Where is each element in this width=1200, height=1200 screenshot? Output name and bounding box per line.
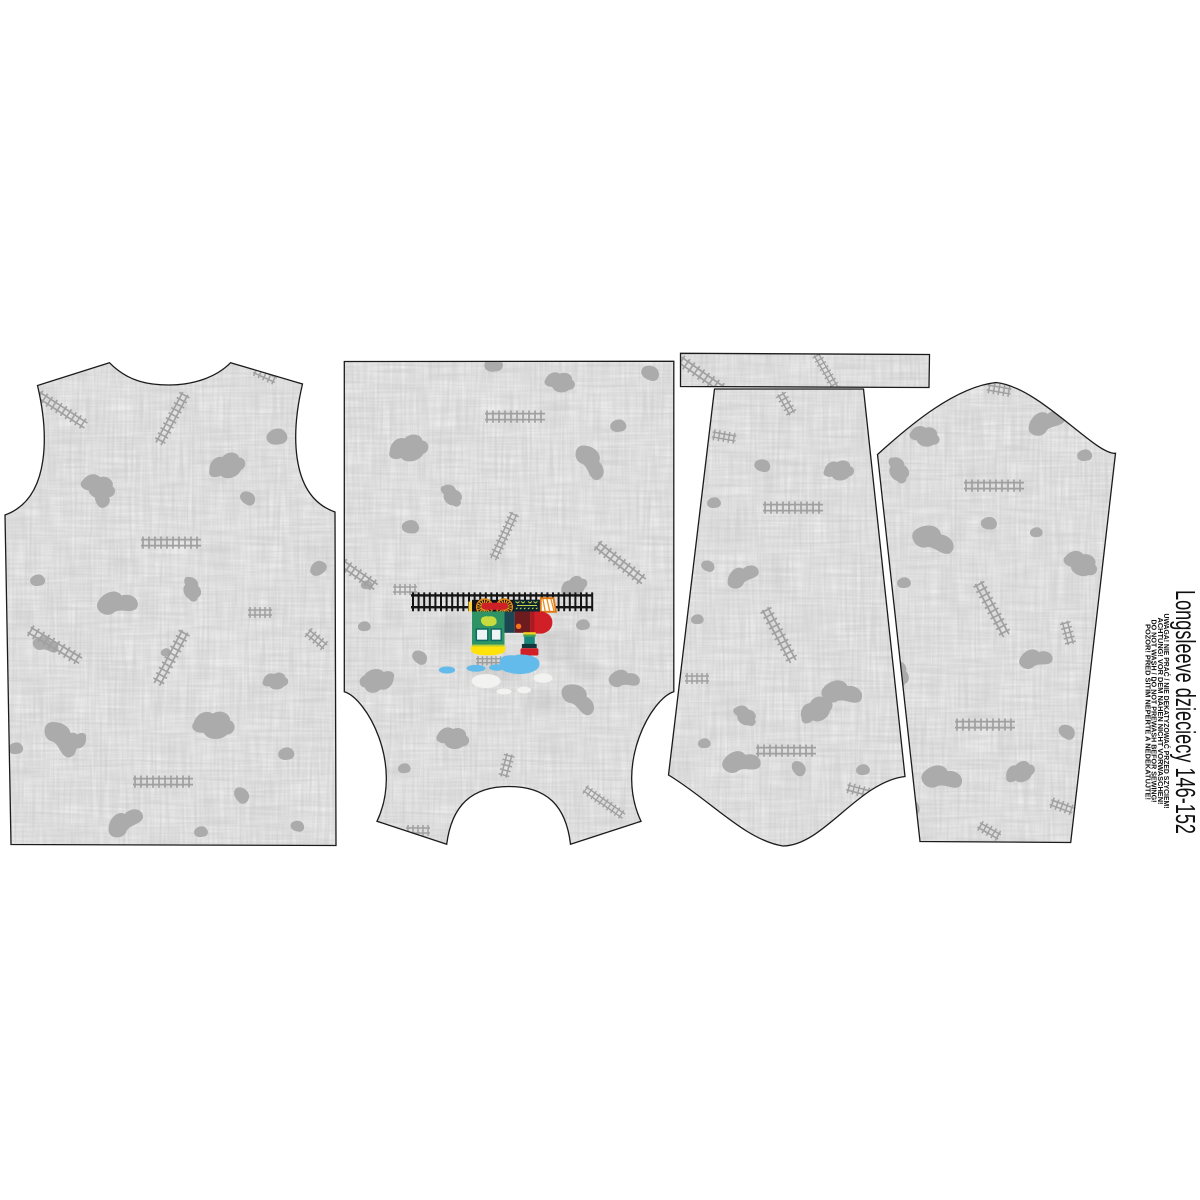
svg-text:UWAGA! NIE PRAĆ / NIE DEKATYZO: UWAGA! NIE PRAĆ / NIE DEKATYZOWAĆ PRZED … (1143, 614, 1171, 811)
svg-text:Longsleeve dzieciecy 146-152: Longsleeve dzieciecy 146-152 (1170, 590, 1200, 834)
